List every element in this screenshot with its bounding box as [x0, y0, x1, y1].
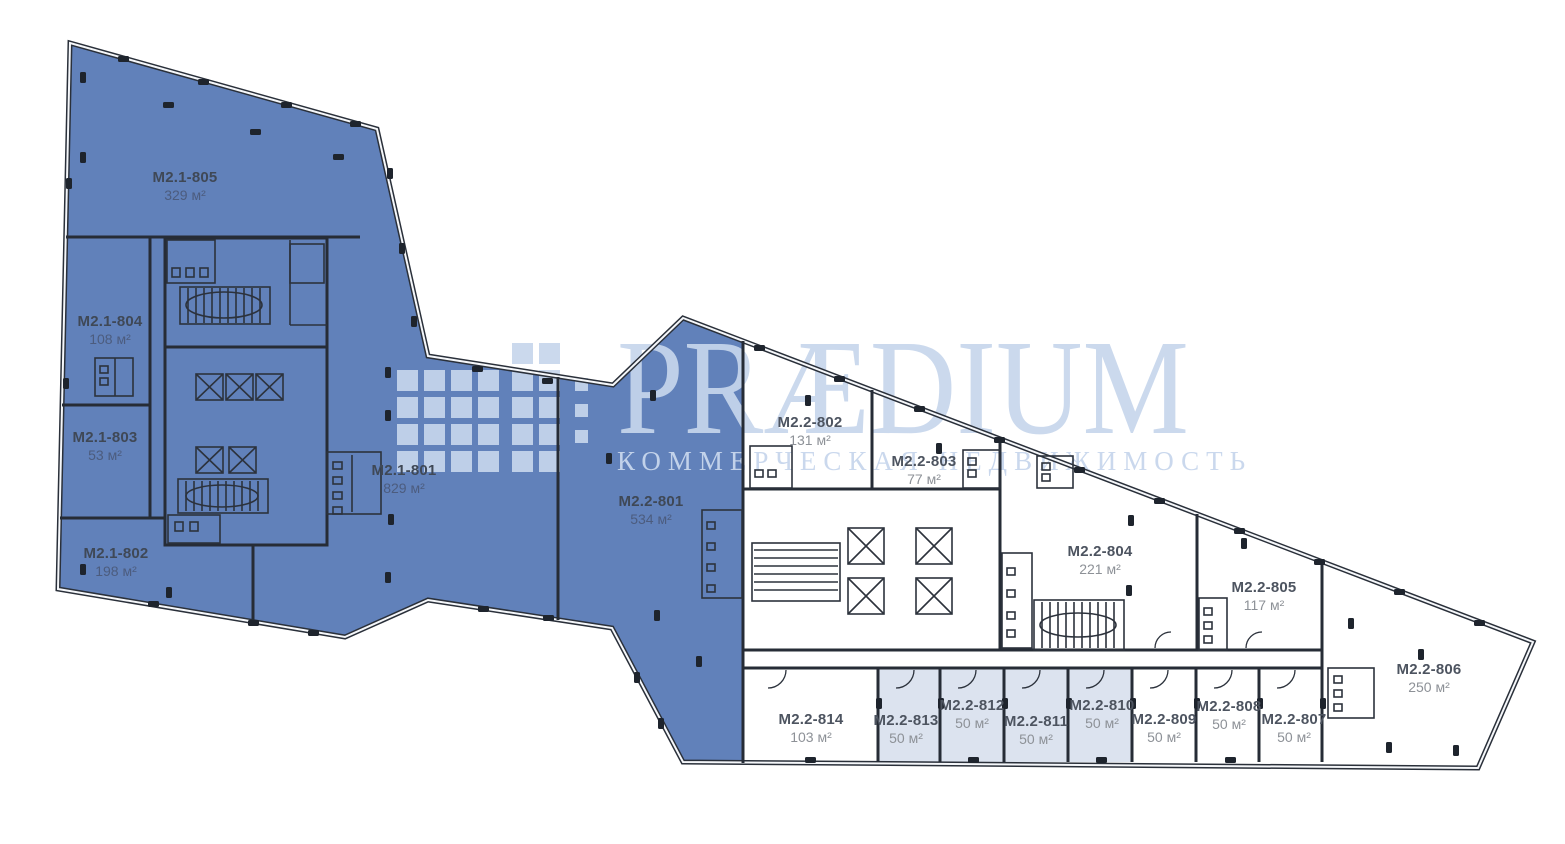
unit-label-m2.2-808[interactable]: M2.2-80850 м²	[1197, 698, 1262, 732]
unit-id: M2.2-807	[1262, 711, 1327, 728]
unit-label-m2.1-805[interactable]: M2.1-805329 м²	[153, 169, 218, 203]
unit-area: 534 м²	[619, 511, 684, 527]
unit-area: 829 м²	[372, 480, 437, 496]
unit-area: 53 м²	[73, 447, 138, 463]
unit-id: M2.2-813	[874, 712, 939, 729]
unit-area: 50 м²	[874, 730, 939, 746]
unit-id: M2.2-810	[1070, 697, 1135, 714]
unit-area: 117 м²	[1232, 597, 1297, 613]
unit-id: M2.1-804	[78, 313, 143, 330]
unit-id: M2.2-801	[619, 493, 684, 510]
unit-label-m2.1-802[interactable]: M2.1-802198 м²	[84, 545, 149, 579]
unit-area: 131 м²	[778, 432, 843, 448]
unit-label-m2.2-804[interactable]: M2.2-804221 м²	[1068, 543, 1133, 577]
unit-id: M2.1-803	[73, 429, 138, 446]
unit-label-m2.2-805[interactable]: M2.2-805117 м²	[1232, 579, 1297, 613]
unit-label-m2.1-803[interactable]: M2.1-80353 м²	[73, 429, 138, 463]
unit-label-m2.1-804[interactable]: M2.1-804108 м²	[78, 313, 143, 347]
unit-id: M2.2-804	[1068, 543, 1133, 560]
unit-id: M2.2-803	[892, 453, 957, 470]
unit-label-m2.2-806[interactable]: M2.2-806250 м²	[1397, 661, 1462, 695]
unit-id: M2.2-811	[1004, 713, 1068, 730]
unit-area: 50 м²	[1132, 729, 1197, 745]
unit-id: M2.2-805	[1232, 579, 1297, 596]
unit-id: M2.2-812	[940, 697, 1005, 714]
unit-id: M2.1-802	[84, 545, 149, 562]
unit-label-m2.1-801[interactable]: M2.1-801829 м²	[372, 462, 437, 496]
unit-area: 50 м²	[1004, 731, 1068, 747]
unit-area: 221 м²	[1068, 561, 1133, 577]
unit-id: M2.2-808	[1197, 698, 1262, 715]
floorplan: PRÆDIUM КОММЕРЧЕСКАЯ НЕДВИЖИМОСТЬ	[0, 0, 1565, 844]
unit-area: 50 м²	[1070, 715, 1135, 731]
unit-label-m2.2-807[interactable]: M2.2-80750 м²	[1262, 711, 1327, 745]
unit-label-m2.2-813[interactable]: M2.2-81350 м²	[874, 712, 939, 746]
unit-label-m2.2-811[interactable]: M2.2-81150 м²	[1004, 713, 1068, 747]
unit-label-m2.2-814[interactable]: M2.2-814103 м²	[779, 711, 844, 745]
unit-id: M2.2-802	[778, 414, 843, 431]
unit-area: 108 м²	[78, 331, 143, 347]
unit-label-m2.2-801[interactable]: M2.2-801534 м²	[619, 493, 684, 527]
unit-id: M2.1-801	[372, 462, 437, 479]
unit-area: 50 м²	[1197, 716, 1262, 732]
unit-area: 50 м²	[940, 715, 1005, 731]
unit-area: 198 м²	[84, 563, 149, 579]
unit-id: M2.2-809	[1132, 711, 1197, 728]
unit-area: 250 м²	[1397, 679, 1462, 695]
unit-label-m2.2-802[interactable]: M2.2-802131 м²	[778, 414, 843, 448]
unit-id: M2.2-806	[1397, 661, 1462, 678]
unit-label-m2.2-803[interactable]: M2.2-80377 м²	[892, 453, 957, 487]
unit-area: 103 м²	[779, 729, 844, 745]
unit-id: M2.1-805	[153, 169, 218, 186]
unit-label-m2.2-812[interactable]: M2.2-81250 м²	[940, 697, 1005, 731]
unit-label-m2.2-809[interactable]: M2.2-80950 м²	[1132, 711, 1197, 745]
unit-id: M2.2-814	[779, 711, 844, 728]
available-area-blue[interactable]	[58, 43, 743, 763]
unit-label-m2.2-810[interactable]: M2.2-81050 м²	[1070, 697, 1135, 731]
unit-area: 50 м²	[1262, 729, 1327, 745]
unit-area: 77 м²	[892, 471, 957, 487]
unit-area: 329 м²	[153, 187, 218, 203]
